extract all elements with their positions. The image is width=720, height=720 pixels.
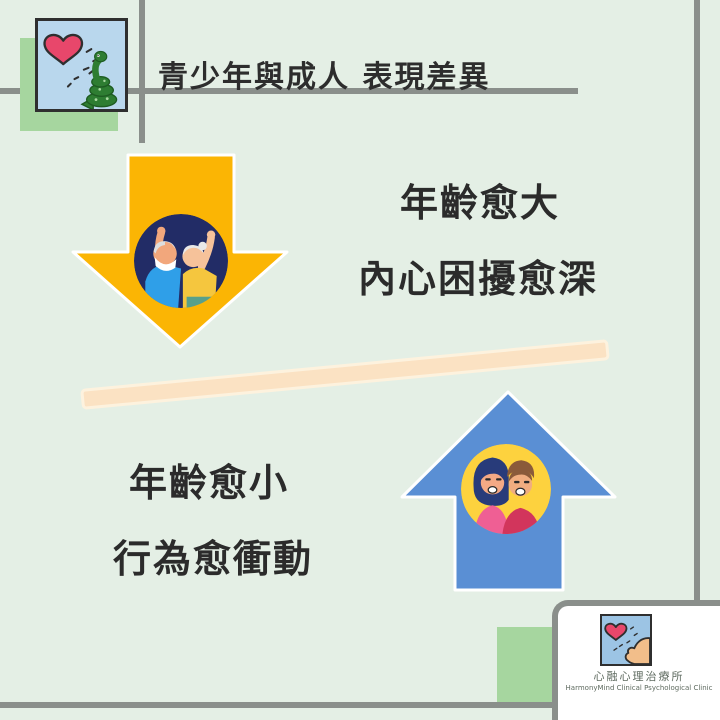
- youth-text-line1: 年齡愈小: [129, 452, 289, 507]
- clinic-name-en: HarmonyMind Clinical Psychological Clini…: [558, 684, 720, 692]
- heart-and-face-logo: [600, 614, 652, 666]
- snake-icon: [82, 51, 117, 109]
- vertical-rule-right: [694, 0, 700, 603]
- youth-text-line2: 行為愈衝動: [113, 528, 313, 583]
- clinic-logo-box: 心融心理治療所 HarmonyMind Clinical Psychologic…: [552, 600, 720, 720]
- adult-text-line1: 年齡愈大: [400, 172, 560, 227]
- heart-icon: [605, 624, 626, 640]
- adult-text-line2: 內心困擾愈深: [358, 248, 598, 303]
- clinic-name-zh: 心融心理治療所: [558, 668, 720, 684]
- vertical-rule-top-left: [139, 0, 145, 143]
- green-accent-bottom: [497, 627, 552, 702]
- page-title: 青少年與成人 表現差異: [158, 52, 490, 96]
- heart-icon: [45, 35, 83, 64]
- young-couple-illustration: [461, 444, 551, 534]
- down-arrow: [65, 150, 295, 350]
- heart-and-snake-illustration: [38, 21, 125, 109]
- horizontal-rule-bottom: [0, 702, 556, 708]
- heart-and-face-illustration: [602, 616, 650, 664]
- heart-and-snake-picture: [35, 18, 128, 112]
- elderly-couple-illustration: [134, 214, 228, 308]
- up-arrow: [395, 388, 623, 594]
- infographic-canvas: 青少年與成人 表現差異: [0, 0, 720, 720]
